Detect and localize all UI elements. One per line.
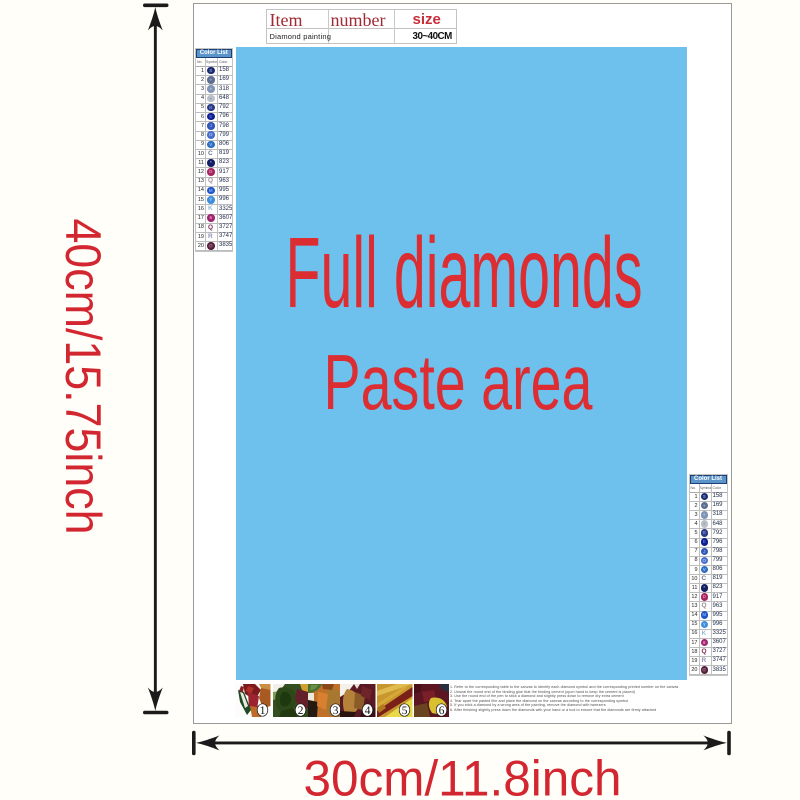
svg-text:40cm/15.75inch: 40cm/15.75inch	[55, 219, 111, 535]
svg-text:30cm/11.8inch: 30cm/11.8inch	[304, 751, 622, 800]
